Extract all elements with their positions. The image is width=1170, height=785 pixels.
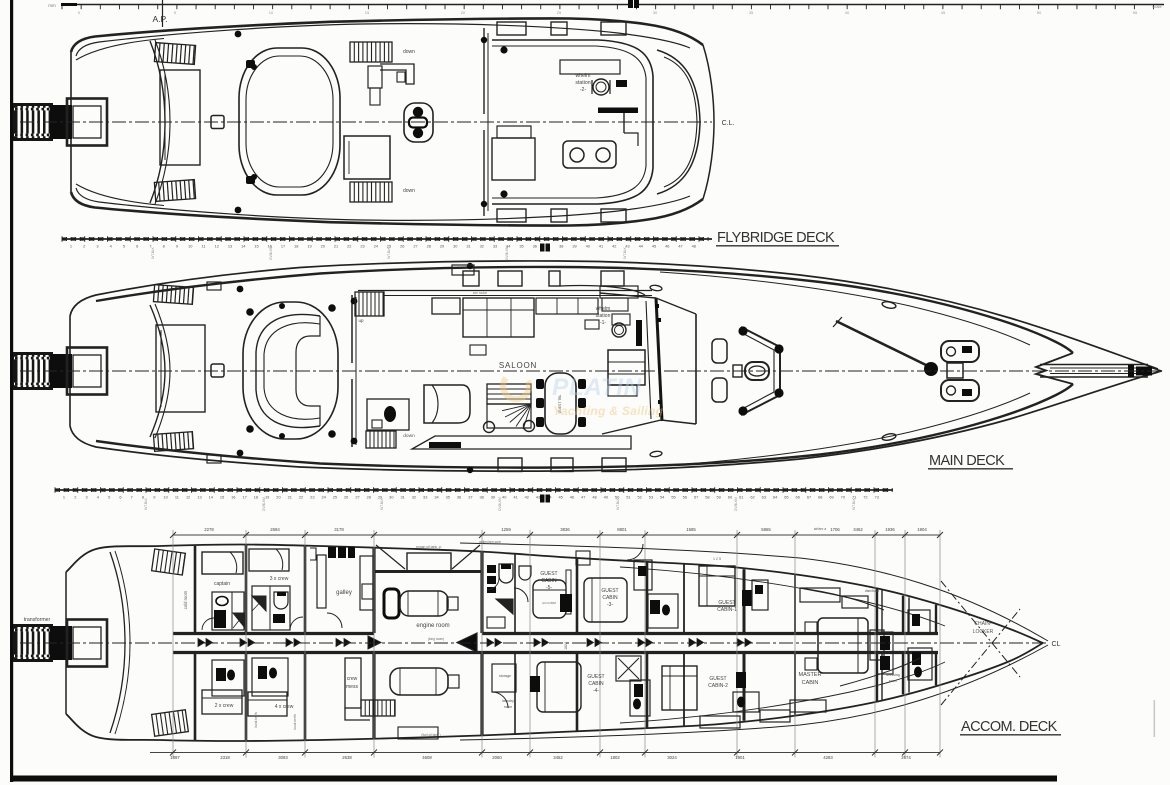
- svg-text:61: 61: [739, 495, 743, 500]
- svg-text:1904: 1904: [917, 527, 927, 532]
- svg-text:17: 17: [281, 244, 285, 249]
- svg-text:49: 49: [604, 495, 608, 500]
- svg-text:27: 27: [355, 495, 359, 500]
- svg-text:63: 63: [762, 495, 766, 500]
- svg-text:25: 25: [333, 495, 337, 500]
- svg-text:47: 47: [678, 244, 682, 249]
- svg-text:15: 15: [254, 244, 258, 249]
- svg-text:down: down: [403, 49, 415, 55]
- svg-text:1 2 5: 1 2 5: [713, 557, 721, 561]
- svg-text:WT.BLK: WT.BLK: [387, 246, 391, 258]
- svg-text:45: 45: [558, 495, 562, 500]
- svg-text:mm: mm: [48, 3, 56, 8]
- svg-text:16: 16: [231, 495, 235, 500]
- svg-text:51: 51: [626, 495, 630, 500]
- svg-text:35: 35: [446, 495, 450, 500]
- svg-text:30: 30: [653, 10, 658, 15]
- svg-text:station: station: [575, 80, 590, 86]
- svg-text:7: 7: [131, 495, 133, 500]
- svg-text:32: 32: [480, 244, 484, 249]
- svg-text:engine room: engine room: [416, 623, 449, 629]
- svg-text:(fuel oil tank ): (fuel oil tank ): [421, 733, 440, 737]
- svg-text:up: up: [358, 318, 364, 323]
- svg-text:3024: 3024: [667, 755, 677, 760]
- svg-text:53: 53: [649, 495, 653, 500]
- svg-text:CL: CL: [1052, 641, 1061, 648]
- svg-text:15: 15: [365, 10, 370, 15]
- svg-text:3836: 3836: [560, 527, 570, 532]
- svg-text:18: 18: [254, 495, 258, 500]
- svg-text:11: 11: [201, 244, 205, 249]
- svg-text:galley/grn.com: galley/grn.com: [479, 540, 501, 544]
- svg-text:5865: 5865: [761, 527, 771, 532]
- svg-text:1936: 1936: [885, 527, 895, 532]
- svg-text:dish/bath: dish/bath: [865, 589, 880, 593]
- svg-text:4 x crew: 4 x crew: [275, 704, 294, 710]
- svg-text:22: 22: [299, 495, 303, 500]
- svg-text:CABIN: CABIN: [802, 680, 819, 686]
- svg-text:3: 3: [96, 244, 98, 249]
- svg-text:43: 43: [536, 495, 540, 500]
- svg-text:11: 11: [175, 495, 179, 500]
- svg-text:36: 36: [457, 495, 461, 500]
- svg-text:ACCOM. DECK: ACCOM. DECK: [961, 719, 1058, 735]
- svg-text:13: 13: [197, 495, 201, 500]
- svg-text:25: 25: [557, 10, 562, 15]
- svg-text:55: 55: [1133, 10, 1138, 15]
- svg-text:PLATIN: PLATIN: [552, 374, 642, 401]
- svg-text:DV.BLKM: DV.BLKM: [262, 497, 266, 511]
- svg-text:-1-: -1-: [600, 320, 606, 326]
- svg-text:42: 42: [525, 495, 529, 500]
- svg-text:WT.BLK: WT.BLK: [151, 246, 155, 258]
- svg-text:32: 32: [412, 495, 416, 500]
- svg-text:12: 12: [215, 244, 219, 249]
- svg-text:68: 68: [818, 495, 822, 500]
- svg-text:3462: 3462: [853, 527, 863, 532]
- svg-text:3 x crew: 3 x crew: [270, 576, 289, 582]
- svg-text:46: 46: [570, 495, 574, 500]
- svg-text:45: 45: [941, 10, 946, 15]
- svg-text:40: 40: [845, 10, 850, 15]
- svg-text:56: 56: [683, 495, 687, 500]
- svg-text:WT.BLK: WT.BLK: [852, 497, 856, 509]
- svg-text:28: 28: [427, 244, 431, 249]
- svg-text:50: 50: [1037, 10, 1042, 15]
- svg-text:18: 18: [294, 244, 298, 249]
- svg-text:62: 62: [750, 495, 754, 500]
- svg-text:1802: 1802: [610, 755, 620, 760]
- svg-text:-2-: -2-: [580, 87, 587, 93]
- svg-text:23: 23: [310, 495, 314, 500]
- svg-text:4283: 4283: [823, 755, 833, 760]
- svg-text:20: 20: [461, 10, 466, 15]
- svg-text:9: 9: [153, 495, 155, 500]
- svg-text:-3-: -3-: [607, 602, 613, 608]
- svg-text:3178: 3178: [334, 527, 344, 532]
- svg-text:15: 15: [220, 495, 224, 500]
- svg-text:DV.BLKM: DV.BLKM: [505, 246, 509, 260]
- svg-text:captain: captain: [214, 581, 230, 587]
- svg-text:35: 35: [519, 244, 523, 249]
- svg-text:2694: 2694: [270, 527, 280, 532]
- svg-text:66: 66: [796, 495, 800, 500]
- svg-text:WT.BLK: WT.BLK: [616, 497, 620, 509]
- svg-text:41: 41: [599, 244, 603, 249]
- svg-text:38: 38: [479, 495, 483, 500]
- svg-text:1585: 1585: [686, 527, 696, 532]
- svg-text:57: 57: [694, 495, 698, 500]
- svg-text:29: 29: [440, 244, 444, 249]
- svg-text:39: 39: [491, 495, 495, 500]
- svg-text:1897: 1897: [170, 755, 180, 760]
- svg-text:scale: scale: [1152, 4, 1162, 9]
- svg-text:DV.BLKM: DV.BLKM: [269, 246, 273, 260]
- svg-text:MAIN DECK: MAIN DECK: [929, 453, 1005, 469]
- svg-text:13: 13: [228, 244, 232, 249]
- svg-text:31: 31: [400, 495, 404, 500]
- svg-text:4608: 4608: [422, 755, 432, 760]
- svg-text:SALOON: SALOON: [499, 361, 537, 370]
- svg-text:GUEST: GUEST: [540, 571, 557, 577]
- svg-text:3083: 3083: [278, 755, 288, 760]
- svg-text:CABIN-2: CABIN-2: [708, 683, 728, 689]
- svg-text:48: 48: [692, 244, 696, 249]
- svg-text:1901: 1901: [735, 755, 745, 760]
- svg-text:33: 33: [423, 495, 427, 500]
- svg-text:5: 5: [108, 495, 110, 500]
- svg-text:ACCOMM: ACCOMM: [542, 601, 556, 605]
- svg-text:down: down: [403, 188, 415, 194]
- svg-text:galley: galley: [336, 590, 352, 596]
- svg-text:6: 6: [136, 244, 138, 249]
- svg-text:36: 36: [533, 244, 537, 249]
- svg-text:8: 8: [163, 244, 165, 249]
- svg-text:26: 26: [400, 244, 404, 249]
- svg-text:9: 9: [176, 244, 178, 249]
- svg-text:1: 1: [70, 244, 72, 249]
- svg-text:6: 6: [119, 495, 121, 500]
- svg-text:GUEST: GUEST: [709, 676, 726, 682]
- svg-text:5: 5: [123, 244, 125, 249]
- svg-text:bunk berth: bunk berth: [254, 712, 258, 727]
- svg-text:12: 12: [186, 495, 190, 500]
- svg-text:59: 59: [717, 495, 721, 500]
- svg-text:17: 17: [242, 495, 246, 500]
- svg-text:2638: 2638: [342, 755, 352, 760]
- svg-text:45: 45: [652, 244, 656, 249]
- svg-text:42: 42: [612, 244, 616, 249]
- svg-text:FLYBRIDGE DECK: FLYBRIDGE DECK: [717, 230, 835, 246]
- svg-text:CABIN: CABIN: [541, 578, 557, 584]
- svg-text:CABIN: CABIN: [588, 681, 604, 687]
- svg-text:mess: mess: [346, 684, 358, 690]
- svg-text:37: 37: [468, 495, 472, 500]
- svg-text:1: 1: [63, 495, 65, 500]
- svg-text:transformer: transformer: [24, 617, 51, 623]
- svg-text:DV.BLKM: DV.BLKM: [734, 497, 738, 511]
- svg-text:WT.BLK: WT.BLK: [623, 246, 627, 258]
- svg-text:3452: 3452: [553, 755, 563, 760]
- svg-text:72: 72: [863, 495, 867, 500]
- svg-text:whelm: whelm: [596, 306, 610, 312]
- svg-text:47: 47: [581, 495, 585, 500]
- svg-text:bunk berth: bunk berth: [293, 714, 297, 729]
- svg-text:21: 21: [288, 495, 292, 500]
- svg-text:2: 2: [83, 244, 85, 249]
- svg-text:laundry: laundry: [502, 699, 514, 703]
- svg-text:41: 41: [513, 495, 517, 500]
- svg-text:22: 22: [347, 244, 351, 249]
- svg-text:crew: crew: [347, 676, 358, 682]
- svg-text:73: 73: [875, 495, 879, 500]
- svg-text:2278: 2278: [204, 527, 214, 532]
- svg-text:1706: 1706: [830, 527, 840, 532]
- svg-text:35: 35: [749, 10, 754, 15]
- svg-text:CABIN-1: CABIN-1: [717, 607, 737, 613]
- svg-text:down: down: [403, 433, 415, 439]
- svg-text:CHAIN-: CHAIN-: [974, 621, 992, 627]
- svg-text:A.P.: A.P.: [153, 14, 168, 24]
- svg-text:MASTER: MASTER: [799, 672, 822, 678]
- svg-text:31: 31: [466, 244, 470, 249]
- svg-text:38: 38: [559, 244, 563, 249]
- svg-text:CABIN: CABIN: [602, 595, 618, 601]
- svg-text:station: station: [596, 313, 611, 319]
- svg-text:52: 52: [638, 495, 642, 500]
- svg-text:GUEST: GUEST: [718, 600, 735, 606]
- svg-text:airfare a: airfare a: [814, 527, 827, 531]
- svg-text:10: 10: [269, 10, 274, 15]
- svg-text:48: 48: [592, 495, 596, 500]
- svg-text:21: 21: [334, 244, 338, 249]
- svg-text:23: 23: [360, 244, 364, 249]
- svg-text:expan oil tank .p.: expan oil tank .p.: [416, 545, 442, 549]
- svg-text:26: 26: [344, 495, 348, 500]
- svg-text:2 x crew: 2 x crew: [215, 703, 234, 709]
- svg-text:46: 46: [665, 244, 669, 249]
- svg-text:DV.BLKM: DV.BLKM: [498, 497, 502, 511]
- svg-text:Yachting & Sailing: Yachting & Sailing: [553, 404, 664, 418]
- svg-text:58: 58: [705, 495, 709, 500]
- svg-text:2318: 2318: [220, 755, 230, 760]
- svg-text:2: 2: [74, 495, 76, 500]
- svg-text:65: 65: [784, 495, 788, 500]
- svg-text:am radar: am radar: [473, 291, 488, 295]
- svg-text:27: 27: [413, 244, 417, 249]
- svg-text:WT.BLK: WT.BLK: [380, 497, 384, 509]
- svg-text:(long room): (long room): [428, 637, 444, 641]
- svg-text:55: 55: [671, 495, 675, 500]
- svg-text:2674: 2674: [901, 755, 911, 760]
- svg-text:2060: 2060: [492, 755, 502, 760]
- svg-text:GUEST: GUEST: [601, 588, 618, 594]
- svg-text:storage: storage: [499, 674, 511, 678]
- svg-text:1259: 1259: [501, 527, 511, 532]
- svg-text:GUEST: GUEST: [587, 674, 604, 680]
- svg-text:28: 28: [367, 495, 371, 500]
- svg-text:cold room: cold room: [183, 590, 188, 609]
- svg-text:67: 67: [807, 495, 811, 500]
- svg-text:69: 69: [829, 495, 833, 500]
- svg-text:33: 33: [493, 244, 497, 249]
- svg-text:-4-: -4-: [593, 688, 599, 694]
- svg-text:19: 19: [307, 244, 311, 249]
- svg-text:WT.BLK: WT.BLK: [144, 497, 148, 509]
- svg-text:3: 3: [85, 495, 87, 500]
- svg-text:39: 39: [572, 244, 576, 249]
- svg-text:C.L.: C.L.: [722, 120, 735, 127]
- svg-text:8801: 8801: [617, 527, 627, 532]
- svg-text:room: room: [889, 679, 897, 683]
